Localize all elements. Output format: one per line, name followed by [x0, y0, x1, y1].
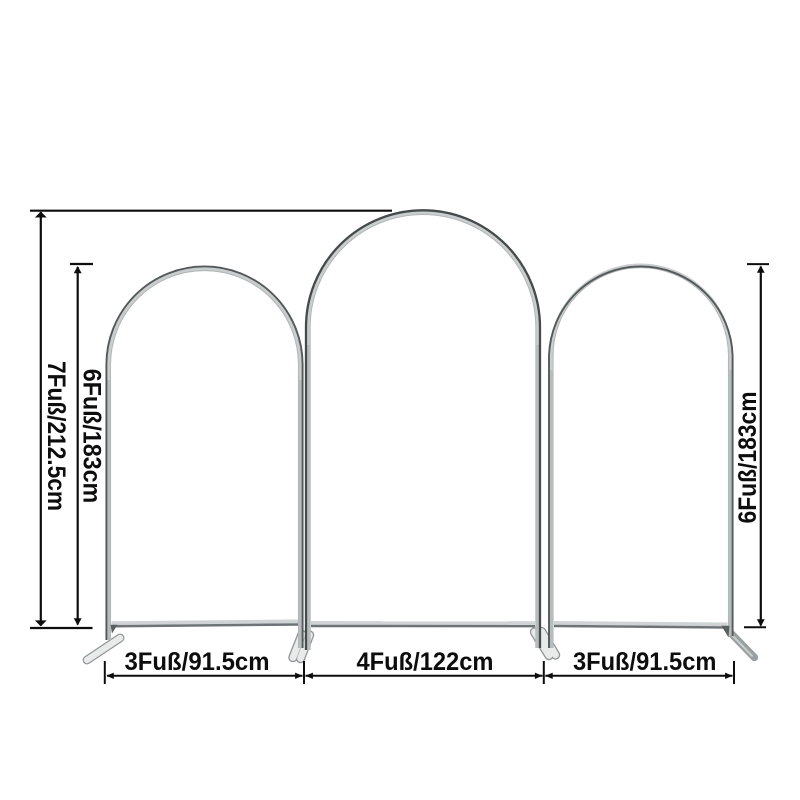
svg-text:6Fuß/183cm: 6Fuß/183cm — [77, 369, 105, 504]
svg-text:7Fuß/212.5cm: 7Fuß/212.5cm — [42, 361, 70, 511]
svg-text:3Fuß/91.5cm: 3Fuß/91.5cm — [573, 648, 717, 676]
svg-text:6Fuß/183cm: 6Fuß/183cm — [734, 392, 762, 524]
svg-text:4Fuß/122cm: 4Fuß/122cm — [357, 648, 494, 676]
svg-text:3Fuß/91.5cm: 3Fuß/91.5cm — [125, 648, 270, 676]
